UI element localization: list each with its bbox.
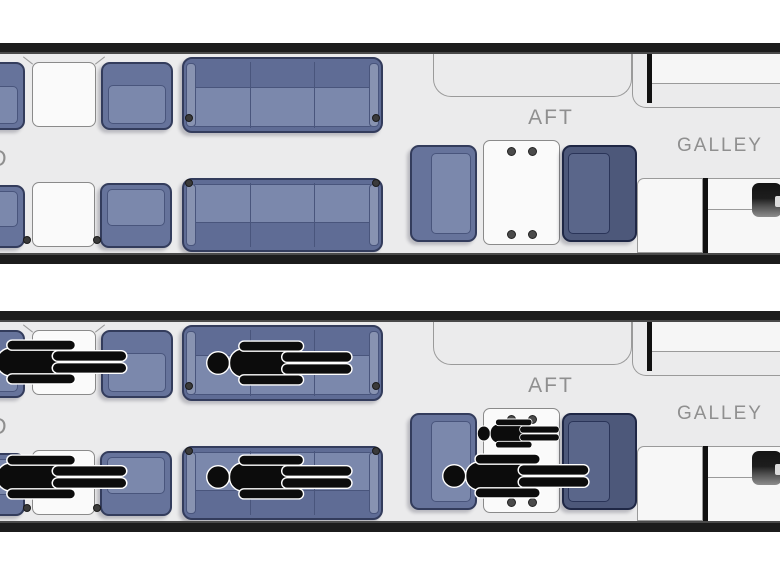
cabin-diagram-seating-config: AFT D GALLEY (0, 43, 780, 264)
club-seat (101, 62, 173, 130)
sleeping-person-figure (477, 417, 561, 450)
sidewall-ledge-line (23, 324, 33, 332)
divan-seam (250, 183, 251, 247)
seat-cushion (107, 189, 165, 226)
sleeping-person-figure (206, 452, 355, 502)
table-dot (528, 230, 537, 239)
galley-counter-upper (652, 320, 780, 352)
divan-seam (314, 62, 315, 128)
divan-seat-cushion (191, 87, 374, 127)
galley-counter-divider-wall (703, 446, 708, 521)
divan-foot-dot (185, 447, 193, 455)
divan-foot-dot (372, 179, 380, 187)
galley-label: GALLEY (658, 135, 780, 157)
seat-cushion (568, 153, 610, 234)
appliance-handle (775, 464, 780, 475)
divan-armrest (369, 452, 379, 514)
aft-bulkhead-alcove-outline (433, 320, 632, 365)
galley-appliance (752, 183, 780, 217)
divan-foot-dot (372, 114, 380, 122)
aft-label: AFT (520, 374, 582, 398)
table-foot-dot (93, 236, 101, 244)
aft-conference-table (483, 140, 560, 245)
divan-armrest (186, 452, 196, 514)
seat-cushion (0, 86, 18, 124)
aft-loveseat (562, 145, 637, 242)
side-table (32, 62, 96, 127)
aft-club-seat (410, 145, 477, 242)
divan-foot-dot (372, 447, 380, 455)
galley-appliance (752, 451, 780, 485)
table-dot (507, 230, 516, 239)
galley-counter-divider-wall (703, 178, 708, 253)
fuselage-wall-bottom (0, 253, 780, 264)
sleeping-person-figure (442, 451, 592, 501)
galley-label: GALLEY (658, 403, 780, 425)
sleeping-person-figure (0, 337, 130, 387)
sidewall-ledge-line (23, 56, 33, 64)
side-table (32, 182, 95, 247)
fwd-partial-label: D (0, 414, 7, 438)
sleeping-person-figure (206, 338, 355, 388)
divan-seam (314, 183, 315, 247)
fuselage-wall-bottom (0, 521, 780, 532)
divan-armrest (369, 184, 379, 246)
table-dot (507, 147, 516, 156)
galley-counter-upper (652, 52, 780, 84)
club-seat-partial (0, 185, 25, 248)
three-seat-divan (182, 57, 383, 133)
three-seat-divan (182, 178, 383, 252)
cabin-diagram-sleeping-config: AFT D GALLEY (0, 311, 780, 532)
appliance-handle (775, 196, 780, 207)
fwd-partial-label: D (0, 146, 7, 170)
club-seat-partial (0, 62, 25, 130)
galley-counter-lower-left (637, 446, 703, 521)
divan-armrest (186, 184, 196, 246)
table-dot (528, 147, 537, 156)
club-seat (100, 183, 172, 248)
galley-partition-wall (647, 320, 652, 371)
aft-bulkhead-alcove-outline (433, 52, 632, 97)
aircraft-cabin-floorplan: AFT D GALLEY (0, 0, 780, 574)
divan-foot-dot (185, 382, 193, 390)
furniture-layer: AFT D GALLEY (0, 43, 780, 264)
divan-seat-cushion (191, 184, 374, 223)
seat-cushion (0, 191, 18, 227)
divan-foot-dot (372, 382, 380, 390)
sleeping-person-figure (0, 452, 130, 502)
divan-foot-dot (185, 179, 193, 187)
seat-cushion (108, 85, 166, 124)
table-foot-dot (93, 504, 101, 512)
divan-foot-dot (185, 114, 193, 122)
seat-cushion (431, 153, 471, 234)
aft-label: AFT (520, 106, 582, 130)
galley-partition-wall (647, 52, 652, 103)
galley-counter-lower-left (637, 178, 703, 253)
table-foot-dot (23, 236, 31, 244)
table-foot-dot (23, 504, 31, 512)
fuselage-wall-top (0, 311, 780, 322)
fuselage-wall-top (0, 43, 780, 54)
divan-seam (250, 62, 251, 128)
